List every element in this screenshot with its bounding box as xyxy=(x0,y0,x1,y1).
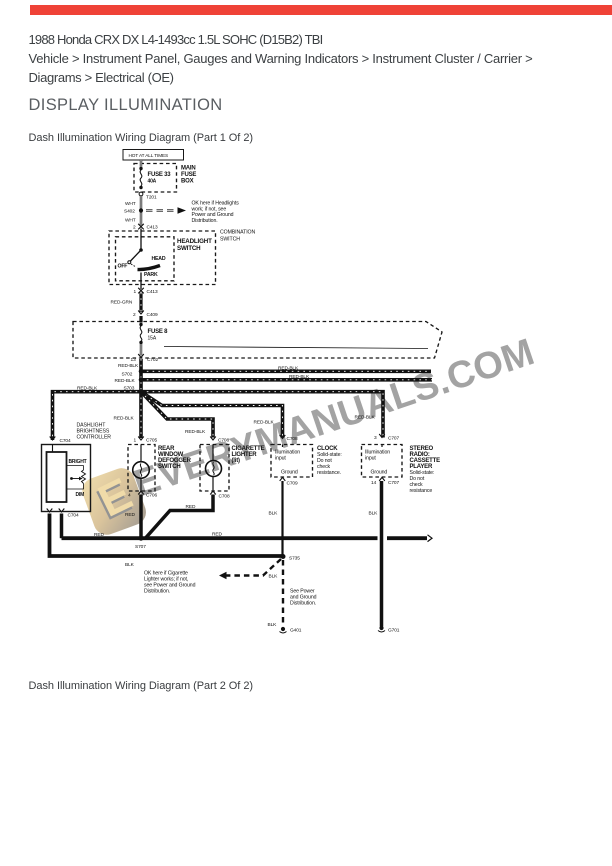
svg-text:G401: G401 xyxy=(290,628,302,634)
svg-text:RED-BLK: RED-BLK xyxy=(289,374,310,380)
svg-text:G701: G701 xyxy=(388,628,400,634)
svg-text:WHT: WHT xyxy=(125,218,136,224)
svg-text:FUSE: FUSE xyxy=(181,172,196,178)
svg-text:RED-BLK: RED-BLK xyxy=(355,415,376,421)
svg-text:C708: C708 xyxy=(219,494,230,500)
svg-text:Ground: Ground xyxy=(281,470,298,476)
svg-text:SWITCH: SWITCH xyxy=(220,237,240,243)
svg-text:C708: C708 xyxy=(287,436,298,442)
svg-text:RED: RED xyxy=(125,512,135,518)
svg-text:Distribution.: Distribution. xyxy=(144,589,170,595)
svg-text:BOX: BOX xyxy=(181,179,194,185)
svg-text:C705: C705 xyxy=(146,438,157,444)
svg-text:C409: C409 xyxy=(147,312,158,318)
svg-text:RED: RED xyxy=(212,532,222,538)
svg-text:BLK: BLK xyxy=(125,562,135,568)
svg-text:S707: S707 xyxy=(135,544,146,550)
svg-text:40A: 40A xyxy=(148,179,157,185)
svg-text:BRIGHT: BRIGHT xyxy=(69,459,87,465)
svg-text:RED-BLK: RED-BLK xyxy=(77,385,98,391)
svg-text:T201: T201 xyxy=(146,195,157,201)
svg-text:RED: RED xyxy=(186,504,196,510)
svg-text:C707: C707 xyxy=(388,480,399,486)
svg-text:SWITCH: SWITCH xyxy=(158,464,180,470)
svg-text:resistance: resistance xyxy=(410,488,433,494)
svg-text:C702: C702 xyxy=(147,357,158,363)
svg-text:BLK: BLK xyxy=(369,511,379,517)
svg-text:DIM: DIM xyxy=(76,492,85,498)
svg-text:2: 2 xyxy=(133,225,136,231)
svg-text:C707: C707 xyxy=(388,436,399,442)
svg-text:Ground: Ground xyxy=(371,470,388,476)
svg-text:SWITCH: SWITCH xyxy=(177,245,201,252)
svg-text:Distribution.: Distribution. xyxy=(290,601,316,607)
svg-text:input: input xyxy=(365,456,376,462)
svg-text:PARK: PARK xyxy=(144,272,158,278)
svg-text:FUSE 33: FUSE 33 xyxy=(148,172,172,178)
svg-text:BLK: BLK xyxy=(268,622,278,628)
svg-text:BLK: BLK xyxy=(269,511,279,517)
svg-text:RED-BLK: RED-BLK xyxy=(118,363,139,369)
svg-text:RED-BLK: RED-BLK xyxy=(185,429,206,435)
svg-text:1: 1 xyxy=(134,438,137,444)
svg-text:S402: S402 xyxy=(124,209,135,215)
svg-text:2: 2 xyxy=(133,312,136,318)
svg-text:RED-BLK: RED-BLK xyxy=(114,416,135,422)
svg-text:MAIN: MAIN xyxy=(181,166,196,172)
svg-text:13: 13 xyxy=(131,357,137,363)
svg-text:BLK: BLK xyxy=(269,574,279,580)
svg-text:(lit): (lit) xyxy=(232,458,241,464)
svg-text:RED: RED xyxy=(94,532,104,538)
svg-text:C704: C704 xyxy=(60,438,71,444)
svg-text:HEAD: HEAD xyxy=(152,256,166,262)
svg-text:C413: C413 xyxy=(147,289,158,295)
svg-text:14: 14 xyxy=(371,480,377,486)
svg-text:resistance.: resistance. xyxy=(317,470,341,476)
svg-text:RED-GRN: RED-GRN xyxy=(111,300,133,306)
svg-text:S702: S702 xyxy=(122,372,133,378)
svg-text:C706: C706 xyxy=(146,493,157,499)
svg-text:15A: 15A xyxy=(148,336,157,342)
svg-text:input: input xyxy=(275,456,286,462)
svg-text:C413: C413 xyxy=(147,225,158,231)
svg-text:C704: C704 xyxy=(68,513,79,519)
svg-text:OFF: OFF xyxy=(118,264,128,270)
svg-text:WHT: WHT xyxy=(125,201,136,207)
svg-text:4: 4 xyxy=(128,493,131,499)
svg-text:RED-BLK: RED-BLK xyxy=(115,378,136,384)
svg-text:1: 1 xyxy=(134,289,137,295)
svg-text:HEADLIGHT: HEADLIGHT xyxy=(177,238,212,245)
svg-text:C709: C709 xyxy=(287,481,298,487)
svg-text:COMBINATION: COMBINATION xyxy=(220,230,255,236)
svg-text:Distribution.: Distribution. xyxy=(192,218,218,224)
svg-text:RED-BLK: RED-BLK xyxy=(254,420,275,426)
svg-text:CONTROLLER: CONTROLLER xyxy=(77,435,112,441)
svg-text:RED-BLK: RED-BLK xyxy=(278,366,299,372)
svg-text:3: 3 xyxy=(374,435,377,441)
svg-text:C708: C708 xyxy=(218,438,229,444)
svg-text:HOT AT ALL TIMES: HOT AT ALL TIMES xyxy=(129,153,169,158)
svg-text:S735: S735 xyxy=(289,556,300,562)
svg-text:FUSE 8: FUSE 8 xyxy=(148,329,169,335)
